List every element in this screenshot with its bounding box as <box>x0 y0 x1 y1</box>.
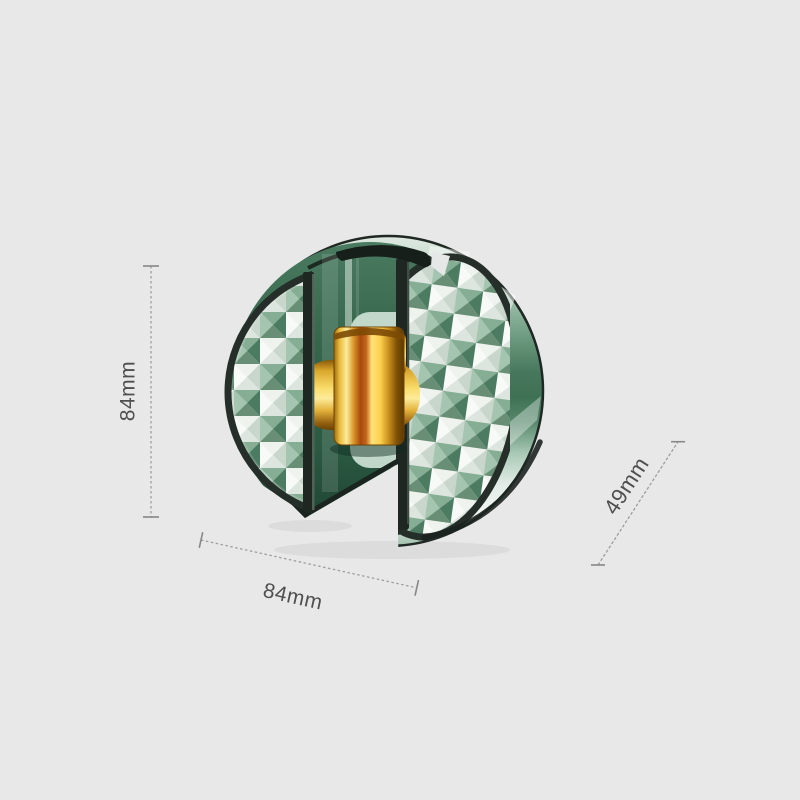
height-dimension-label: 84mm <box>117 361 140 421</box>
product-and-dimensions-canvas: 84mm 84mm 49mm <box>0 0 800 800</box>
front-cut-edge-highlight <box>312 274 315 510</box>
product-shadow <box>274 541 510 559</box>
product-shadow-left <box>268 520 352 532</box>
product-showcase: 84mm 84mm 49mm <box>0 0 800 800</box>
gold-barrel <box>334 327 404 445</box>
